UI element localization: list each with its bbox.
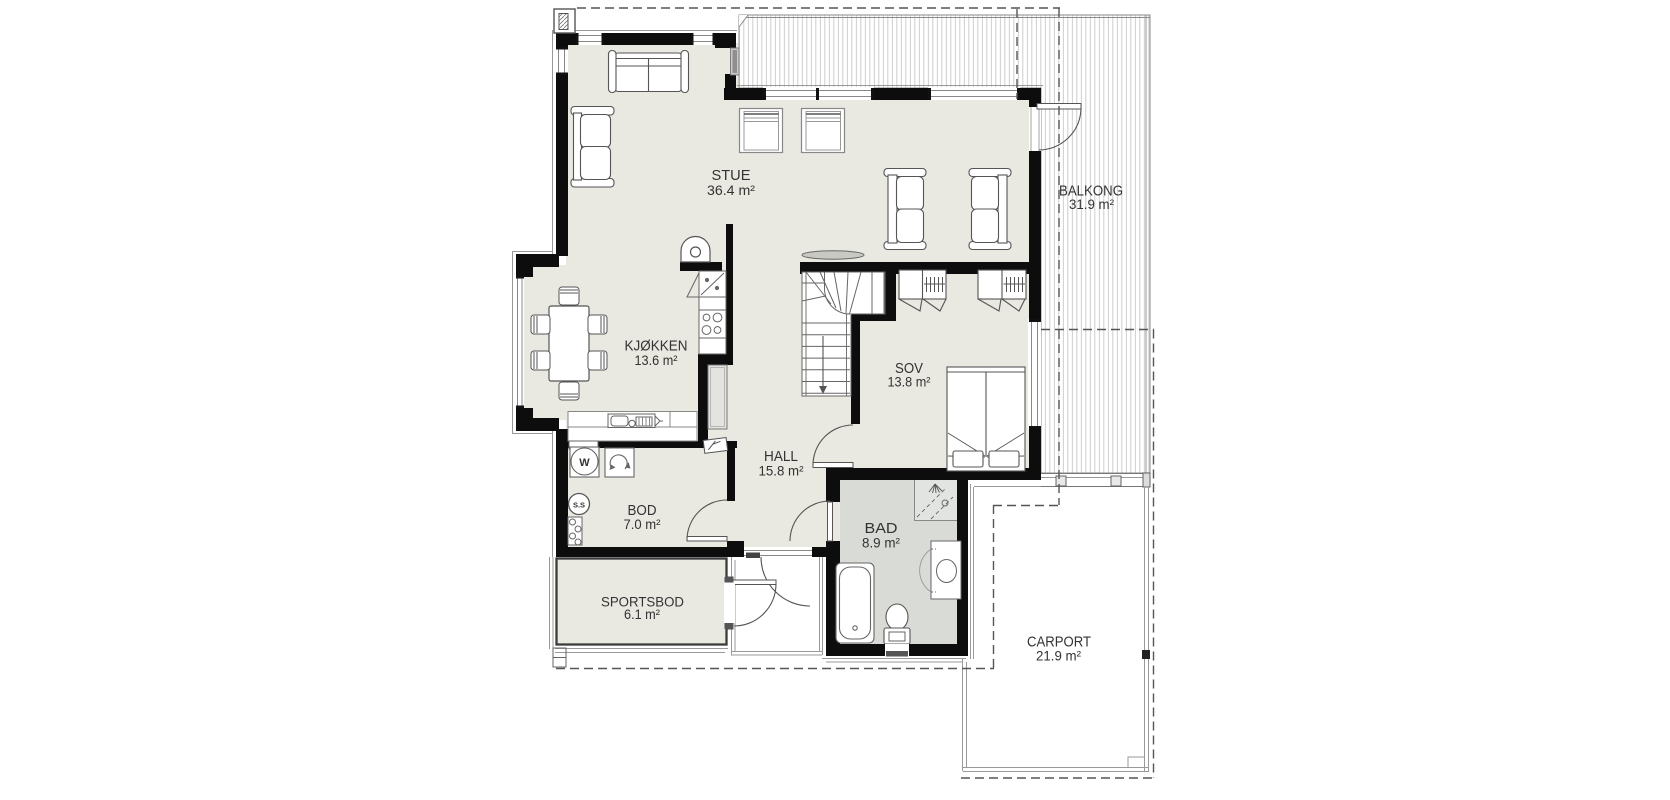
svg-text:7.0 m²: 7.0 m² (624, 517, 661, 532)
svg-text:8.9 m²: 8.9 m² (862, 536, 900, 551)
svg-text:STUE: STUE (712, 168, 751, 184)
svg-text:15.8 m²: 15.8 m² (759, 464, 804, 479)
svg-text:21.9 m²: 21.9 m² (1036, 649, 1081, 664)
svg-text:6.1 m²: 6.1 m² (624, 607, 660, 622)
svg-text:13.8 m²: 13.8 m² (888, 375, 931, 390)
svg-text:36.4 m²: 36.4 m² (707, 183, 755, 198)
svg-text:31.9 m²: 31.9 m² (1069, 197, 1114, 212)
svg-text:13.6 m²: 13.6 m² (635, 353, 678, 368)
svg-text:S.S: S.S (573, 501, 585, 510)
svg-text:W: W (579, 457, 590, 469)
